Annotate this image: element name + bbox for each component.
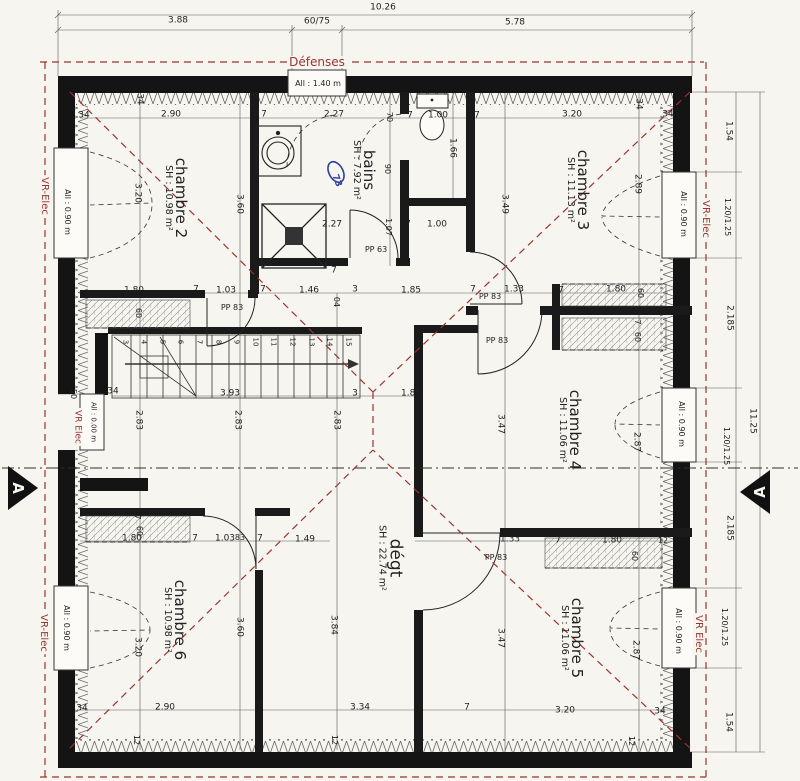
window-left-small (80, 394, 104, 450)
window-left-upper (54, 148, 88, 258)
window-top (288, 70, 346, 96)
washing-machine (256, 126, 301, 176)
closets (86, 284, 666, 568)
stairs-direction-arrow (348, 359, 359, 369)
window-right-upper (662, 172, 696, 258)
window-right-middle (662, 388, 696, 462)
wc-door-arc (359, 114, 405, 160)
bath-door-arc (287, 115, 339, 167)
exterior-walls (58, 76, 692, 768)
window-left-lower (54, 586, 88, 670)
section-marker-right: A (740, 470, 770, 514)
floor-plan-drawing: A A (0, 0, 800, 781)
section-letter-left: A (9, 482, 27, 494)
window-right-lower (662, 588, 696, 668)
blue-pen-mark (325, 159, 348, 185)
section-marker-left: A (8, 466, 38, 510)
staircase (112, 335, 360, 398)
windows (54, 70, 696, 670)
floor-plan-scan: A A chambre 2SH : 10.98 m²chambre 3SH : … (0, 0, 800, 781)
dimension-lines (55, 10, 765, 752)
interior-walls (80, 92, 692, 752)
section-letter-right: A (751, 486, 769, 498)
toilet (417, 94, 448, 140)
